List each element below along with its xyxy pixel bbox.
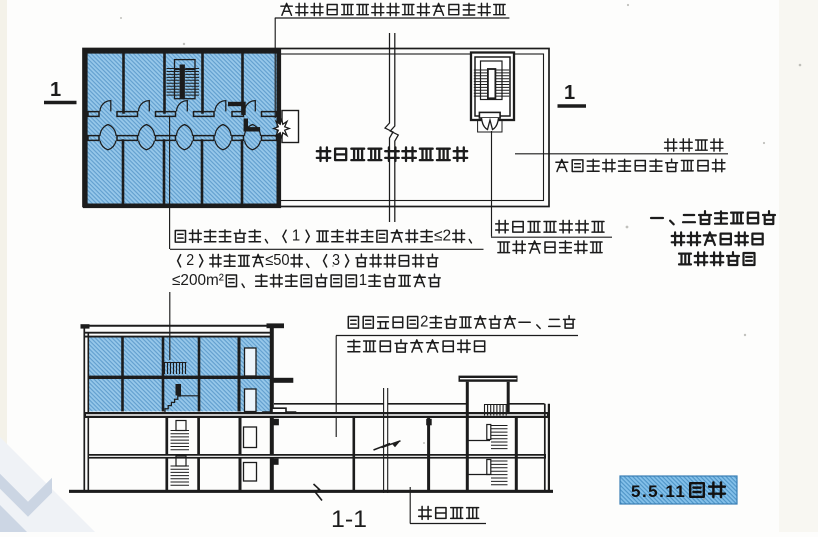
svg-text:5.5.11: 5.5.11 <box>631 482 686 501</box>
svg-text:≤2: ≤2 <box>434 228 451 245</box>
svg-text:2: 2 <box>186 252 194 269</box>
svg-text:2: 2 <box>420 314 428 331</box>
svg-text:1-1: 1-1 <box>331 506 367 532</box>
svg-text:≤50: ≤50 <box>265 252 290 269</box>
svg-text:1: 1 <box>292 228 300 245</box>
svg-text:≤200m²: ≤200m² <box>172 272 224 289</box>
svg-text:1: 1 <box>50 79 61 101</box>
svg-text:1: 1 <box>359 272 368 289</box>
svg-text:1: 1 <box>564 82 575 104</box>
